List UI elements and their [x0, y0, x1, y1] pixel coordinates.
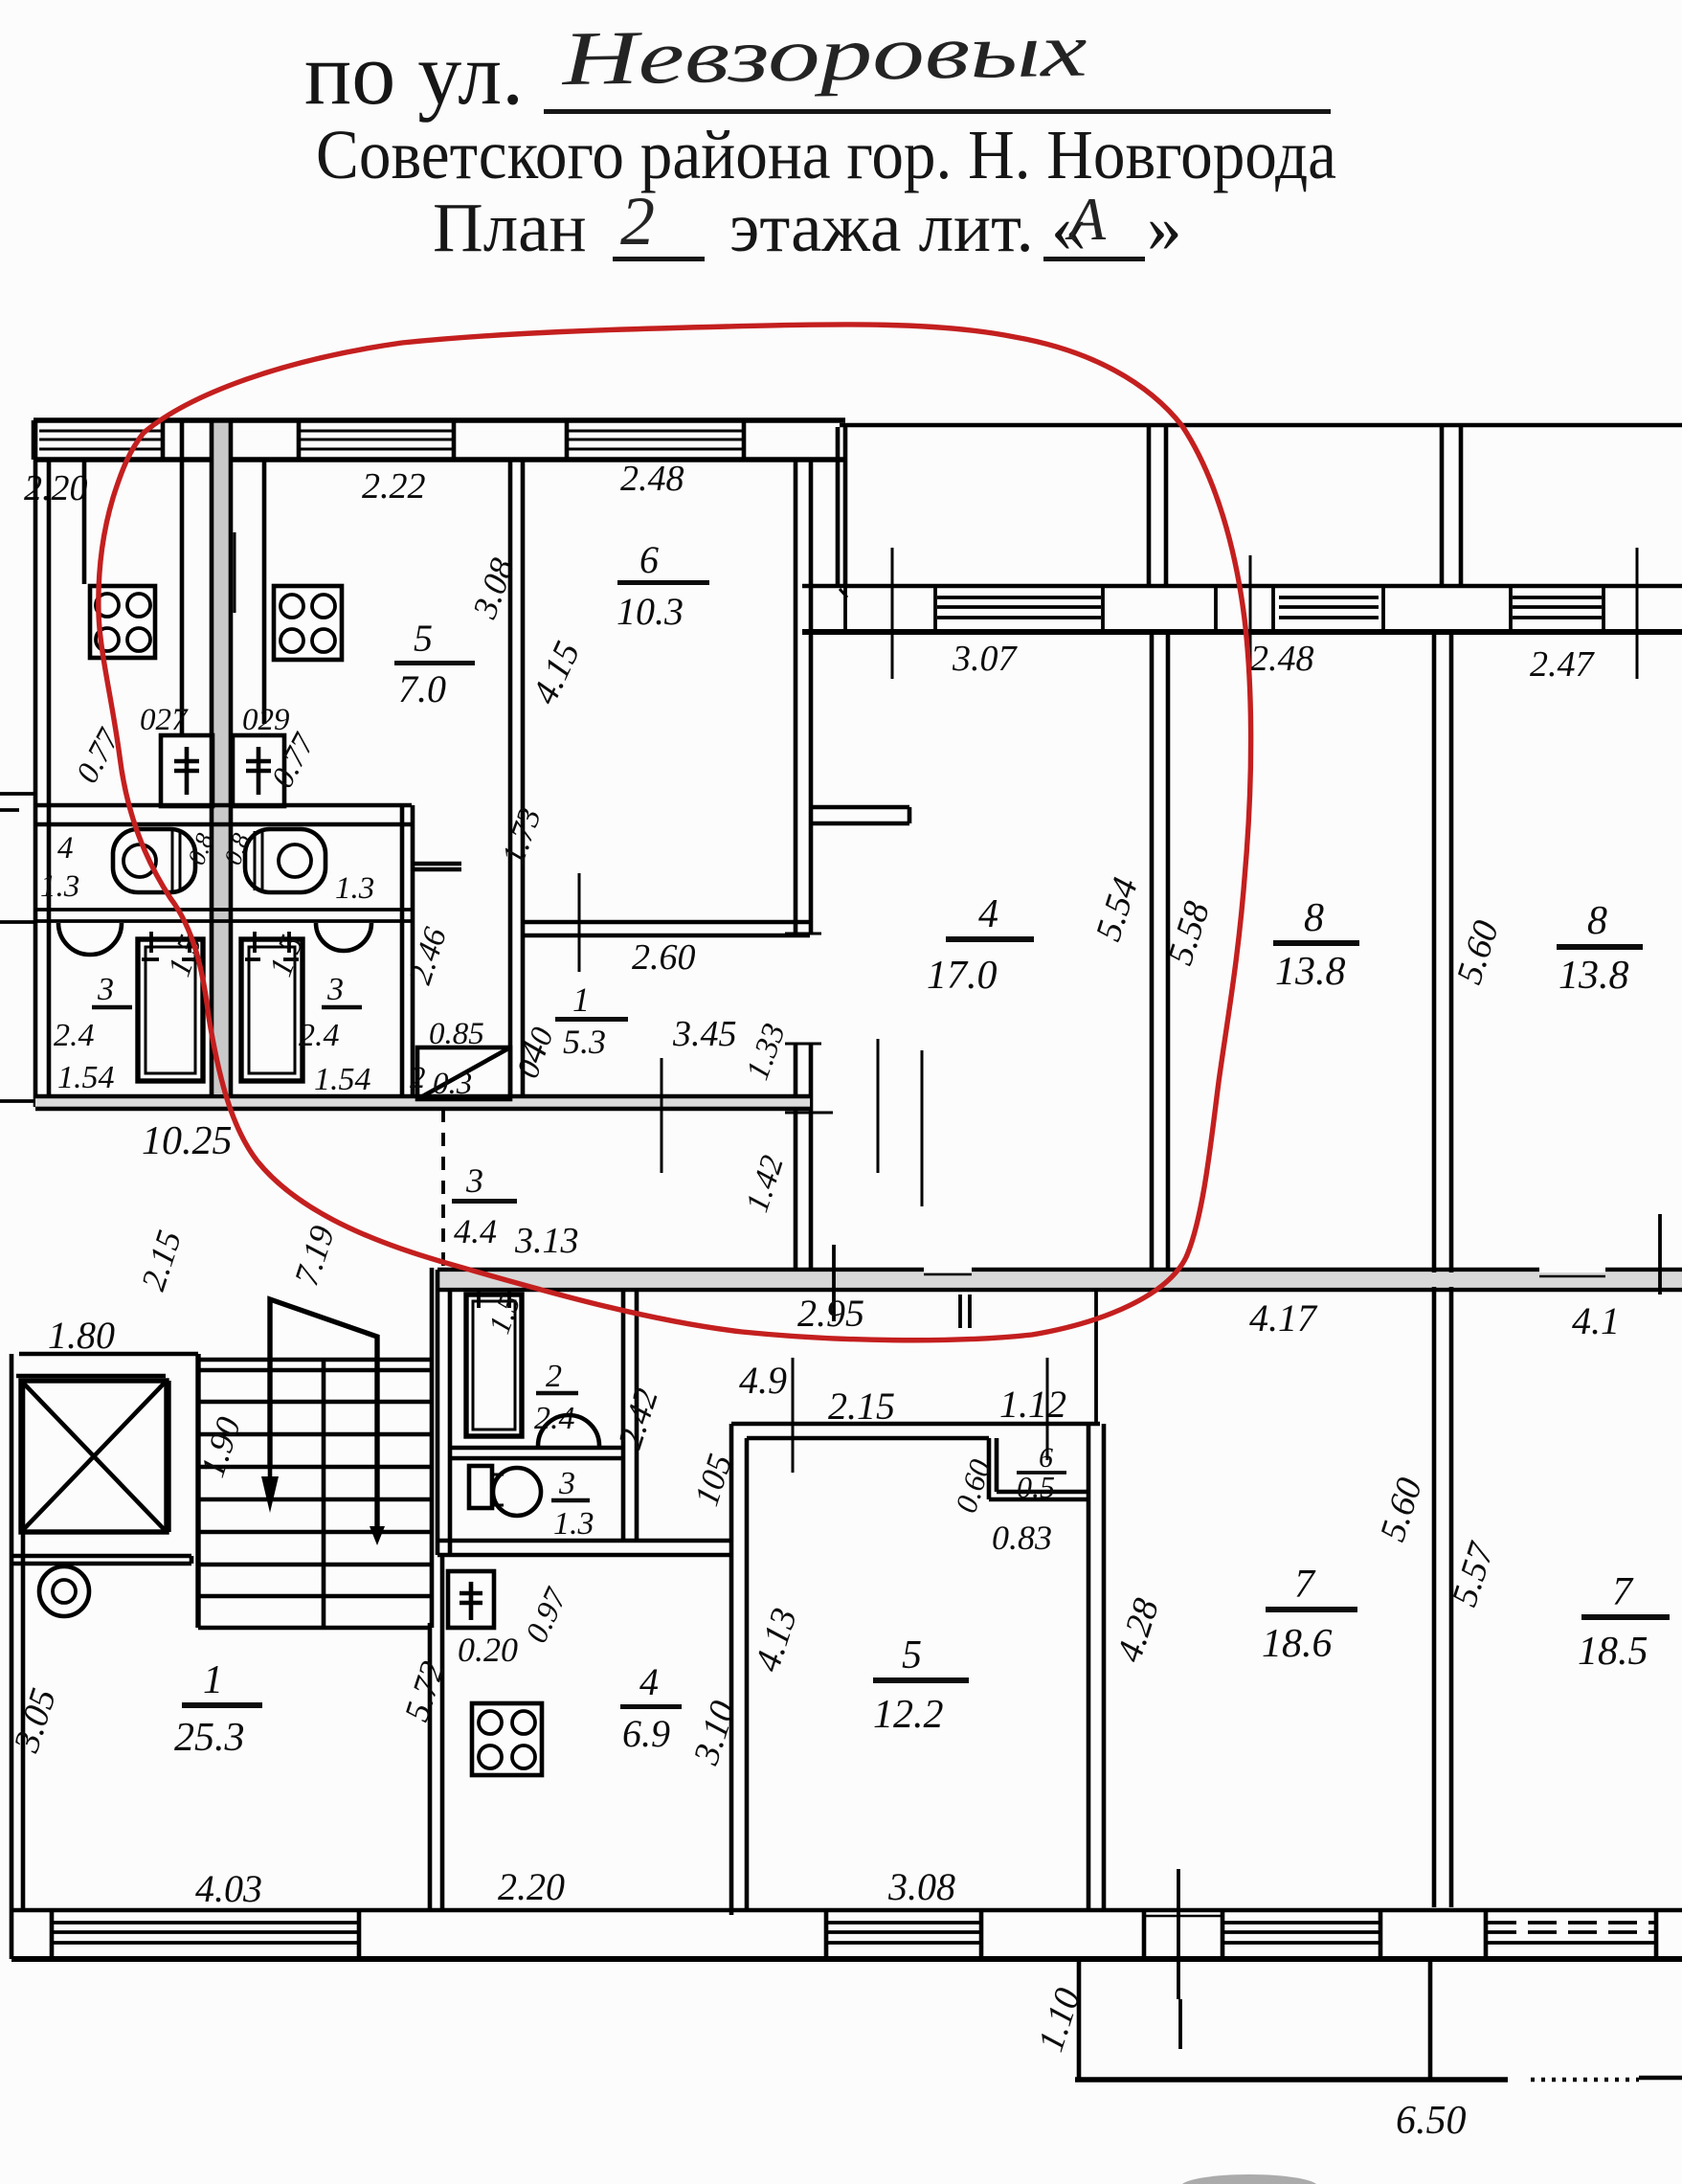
svg-text:2.42: 2.42	[611, 1384, 666, 1452]
svg-text:4.17: 4.17	[1249, 1296, 1318, 1340]
svg-text:2: 2	[546, 1359, 562, 1394]
svg-text:Советского района гор. Н. Новг: Советского района гор. Н. Новгорода	[316, 116, 1336, 193]
svg-text:4: 4	[639, 1660, 659, 1703]
svg-text:2.15: 2.15	[134, 1226, 190, 1295]
svg-text:по ул.: по ул.	[304, 25, 524, 123]
svg-text:»: »	[1147, 189, 1182, 266]
svg-text:5.60: 5.60	[1449, 916, 1507, 989]
svg-text:5.60: 5.60	[1373, 1474, 1430, 1546]
svg-text:18.5: 18.5	[1578, 1630, 1648, 1674]
svg-text:2.60: 2.60	[632, 937, 696, 978]
svg-text:5: 5	[902, 1633, 922, 1677]
svg-text:0.97: 0.97	[520, 1582, 575, 1648]
svg-text:2.95: 2.95	[797, 1292, 864, 1335]
svg-text:8: 8	[1304, 896, 1324, 940]
svg-text:4.9: 4.9	[739, 1359, 787, 1402]
svg-text:1.90: 1.90	[193, 1412, 249, 1481]
svg-text:1.73: 1.73	[496, 803, 549, 869]
svg-text:6.9: 6.9	[622, 1712, 670, 1755]
svg-text:3.08: 3.08	[887, 1865, 955, 1908]
svg-text:1.33: 1.33	[740, 1019, 793, 1085]
svg-text:3: 3	[326, 972, 344, 1007]
svg-text:8: 8	[1587, 899, 1607, 943]
svg-text:4.1: 4.1	[1572, 1299, 1620, 1342]
svg-text:7.0: 7.0	[398, 667, 446, 710]
svg-text:6: 6	[639, 538, 659, 581]
svg-text:18.6: 18.6	[1262, 1622, 1333, 1666]
svg-text:2.4: 2.4	[299, 1018, 340, 1053]
svg-text:3: 3	[465, 1161, 483, 1200]
svg-text:0.85: 0.85	[429, 1017, 484, 1051]
svg-text:2: 2	[620, 183, 655, 259]
svg-text:5: 5	[414, 617, 433, 660]
svg-text:3.07: 3.07	[952, 639, 1019, 679]
svg-text:2.46: 2.46	[402, 923, 454, 988]
svg-text:10.25: 10.25	[142, 1119, 233, 1163]
svg-text:0.60: 0.60	[948, 1455, 998, 1517]
svg-text:1: 1	[203, 1658, 223, 1702]
svg-text:А: А	[1065, 185, 1107, 253]
svg-text:1.42: 1.42	[739, 1151, 791, 1216]
svg-text:3: 3	[97, 972, 114, 1007]
svg-text:3.10: 3.10	[685, 1697, 744, 1770]
svg-text:4: 4	[978, 892, 998, 936]
svg-text:3: 3	[558, 1466, 575, 1501]
svg-text:2.47: 2.47	[1530, 644, 1596, 685]
svg-text:1.12: 1.12	[999, 1383, 1066, 1426]
svg-text:4.03: 4.03	[195, 1867, 262, 1910]
svg-text:3.05: 3.05	[6, 1684, 64, 1758]
svg-text:17.0: 17.0	[927, 954, 998, 998]
svg-text:7: 7	[1294, 1563, 1316, 1607]
svg-text:этажа лит. «: этажа лит. «	[729, 189, 1087, 266]
svg-text:0.20: 0.20	[458, 1631, 518, 1669]
svg-text:13.8: 13.8	[1559, 954, 1629, 998]
svg-text:1.3: 1.3	[553, 1506, 594, 1542]
svg-text:2.4: 2.4	[54, 1018, 95, 1053]
svg-text:2.20: 2.20	[498, 1865, 565, 1908]
svg-text:12.2: 12.2	[873, 1693, 944, 1737]
svg-text:029: 029	[242, 703, 290, 737]
svg-text:3.45: 3.45	[672, 1014, 737, 1054]
svg-text:4.13: 4.13	[748, 1604, 805, 1677]
svg-text:027: 027	[140, 703, 189, 737]
svg-text:План: План	[433, 189, 587, 266]
svg-text:4: 4	[57, 831, 74, 866]
svg-text:4.28: 4.28	[1110, 1594, 1167, 1667]
svg-text:7: 7	[1612, 1570, 1634, 1614]
svg-text:2.22: 2.22	[362, 466, 426, 507]
svg-text:10.3: 10.3	[617, 590, 684, 633]
svg-text:7.19: 7.19	[287, 1221, 343, 1290]
svg-text:4.15: 4.15	[525, 636, 588, 710]
svg-text:2.48: 2.48	[620, 459, 684, 499]
svg-text:0.3: 0.3	[433, 1067, 472, 1101]
svg-text:1.54: 1.54	[57, 1060, 115, 1095]
svg-text:1.80: 1.80	[48, 1314, 115, 1357]
svg-text:2: 2	[410, 1061, 426, 1095]
svg-text:1.3: 1.3	[40, 869, 79, 904]
svg-text:3.13: 3.13	[514, 1221, 579, 1261]
svg-text:1.54: 1.54	[314, 1062, 371, 1097]
svg-text:2.48: 2.48	[1250, 639, 1314, 679]
svg-text:0.5: 0.5	[1017, 1470, 1055, 1504]
svg-text:25.3: 25.3	[174, 1716, 245, 1760]
svg-text:Невзоровых: Невзоровых	[560, 9, 1088, 102]
svg-text:1: 1	[572, 980, 590, 1019]
svg-text:2.15: 2.15	[828, 1385, 895, 1428]
svg-text:0.83: 0.83	[992, 1519, 1052, 1557]
svg-text:6.50: 6.50	[1396, 2099, 1467, 2143]
svg-text:1.3: 1.3	[335, 871, 374, 906]
svg-text:3.08: 3.08	[465, 553, 522, 624]
svg-text:4.4: 4.4	[454, 1212, 497, 1250]
svg-text:13.8: 13.8	[1275, 950, 1346, 994]
svg-text:5.3: 5.3	[563, 1023, 606, 1061]
svg-text:5.54: 5.54	[1088, 873, 1146, 946]
